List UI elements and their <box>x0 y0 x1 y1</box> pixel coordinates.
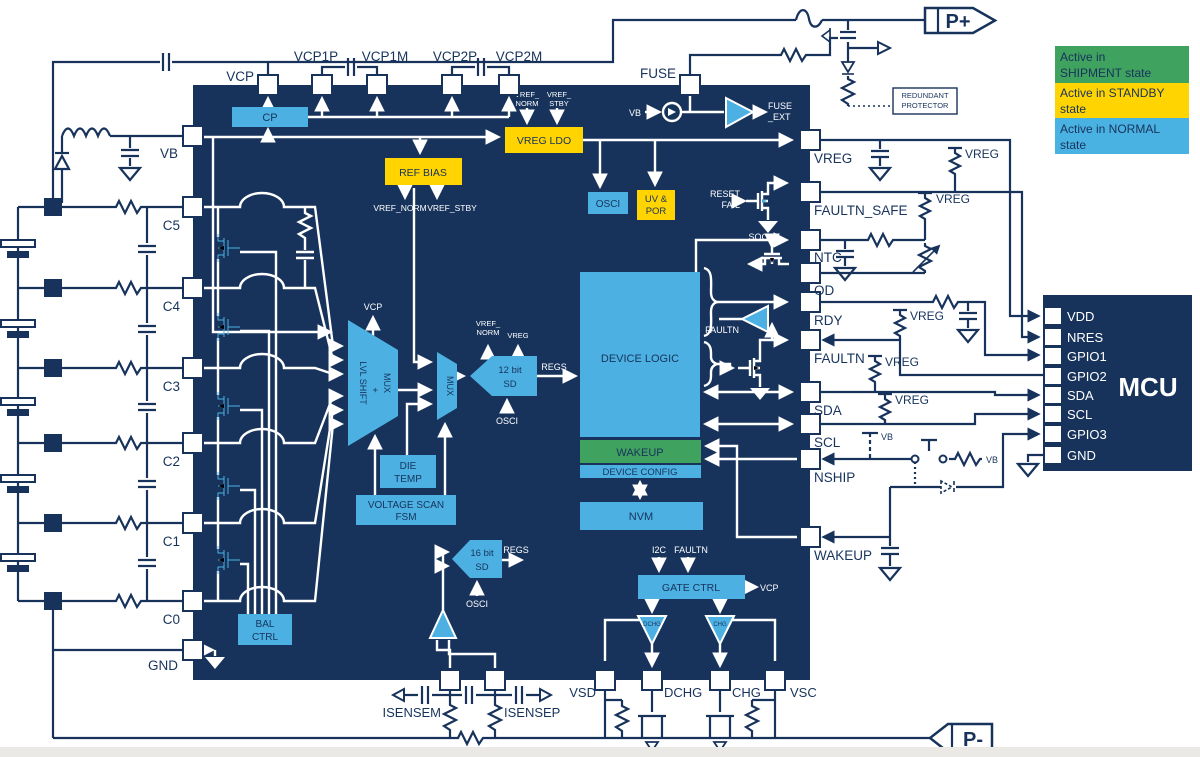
sd12-osci: OSCI <box>496 416 518 426</box>
pin-vcp: VCP <box>226 69 254 84</box>
pin-vreg: VREG <box>814 151 852 166</box>
faultn-driver-label: FAULTN <box>705 325 739 335</box>
pin-c2: C2 <box>163 454 180 469</box>
gate-vcp-label: VCP <box>760 583 779 593</box>
legend-standby-line1: Active in STANDBY <box>1060 86 1164 100</box>
pin-vcp1p: VCP1P <box>294 49 338 64</box>
vb-pullup-label: VB <box>881 432 893 442</box>
soc-label: SOC <box>748 232 768 242</box>
pin-c5: C5 <box>163 218 180 233</box>
battery-stack-network <box>1 129 183 739</box>
lvl-shift-plus: + <box>370 387 380 392</box>
pin-ntc: NTC <box>814 250 842 265</box>
chg-driver-label: CHG <box>713 622 727 628</box>
vref-stby-tiny-1: VREF_ <box>547 90 572 99</box>
vref-stby-out: VREF_STBY <box>427 203 477 213</box>
chg-fet <box>706 690 734 753</box>
pin-gnd: GND <box>148 658 178 673</box>
mcu-pin-gnd: GND <box>1067 448 1096 463</box>
pin-scl: SCL <box>814 435 841 450</box>
mcu-title: MCU <box>1118 372 1177 402</box>
device-logic-label: DEVICE LOGIC <box>601 353 679 365</box>
bottom-network: ISENSEM ISENSEP VSD DCHG CHG VSC <box>53 685 930 753</box>
vcp-flying-caps <box>322 58 509 76</box>
diagram-canvas: REDUNDANT PROTECTOR P+ Active in SHIPMEN… <box>0 0 1200 757</box>
nvm-label: NVM <box>629 511 653 523</box>
bal-ctrl-label-2: CTRL <box>252 632 279 643</box>
mcu-pin-gpio1: GPIO1 <box>1067 349 1107 364</box>
nship-switch-network: VB VB <box>824 432 1038 493</box>
isensem-label: ISENSEM <box>382 705 441 720</box>
mcu: VDD NRES GPIO1 GPIO2 SDA SCL GPIO3 GND M… <box>1043 295 1192 471</box>
pin-wakeup: WAKEUP <box>814 548 872 563</box>
vreg-pullup-label-5: VREG <box>895 393 929 407</box>
vb-fuse-src: VB <box>629 108 641 118</box>
pin-c3: C3 <box>163 379 180 394</box>
voltage-scan-label-1: VOLTAGE SCAN <box>368 500 444 511</box>
pin-vcp2m: VCP2M <box>496 49 543 64</box>
pin-od: OD <box>814 283 835 298</box>
sd12-regs: REGS <box>541 362 567 372</box>
vref-norm-out: VREF_NORM <box>373 203 426 213</box>
p-plus-terminal: P+ <box>925 8 995 33</box>
sd16-osci: OSCI <box>466 599 488 609</box>
osci-label: OSCI <box>596 199 620 210</box>
p-plus-label: P+ <box>945 11 970 33</box>
lvl-shift-mux-label: MUX <box>382 373 392 393</box>
gate-diode <box>842 62 854 74</box>
reset-fail-1: RESET <box>710 189 741 199</box>
legend-normal-line2: state <box>1060 138 1086 152</box>
legend-shipment-line1: Active in <box>1060 50 1105 64</box>
mcu-pin-gpio3: GPIO3 <box>1067 427 1107 442</box>
lvl-shift-label: LVL SHIFT <box>358 361 368 405</box>
pin-c1: C1 <box>163 534 180 549</box>
fuse-ext-2: _EXT <box>767 112 791 122</box>
cp-label: CP <box>262 112 277 124</box>
sd12-vref-1: VREF_ <box>476 319 501 328</box>
dchg-label: DCHG <box>664 685 702 700</box>
bal-ctrl-label-1: BAL <box>256 619 275 630</box>
bottom-strip <box>0 747 1200 757</box>
sd16-regs: REGS <box>503 545 529 555</box>
dchg-fet <box>638 690 666 753</box>
mux-label: MUX <box>445 376 455 396</box>
pin-vcp2p: VCP2P <box>433 49 477 64</box>
legend-shipment-line2: SHIPMENT state <box>1060 66 1151 80</box>
mcu-pin-sda: SDA <box>1067 388 1094 403</box>
sd12-vreg: VREG <box>507 331 528 340</box>
legend: Active in SHIPMENT state Active in STAND… <box>1055 46 1189 154</box>
inductor <box>62 129 110 137</box>
wakeup-block-label: WAKEUP <box>616 447 663 459</box>
dchg-driver-label: DCHG <box>643 622 661 628</box>
pin-c4: C4 <box>163 299 181 314</box>
pin-vb: VB <box>160 146 178 161</box>
gate-faultn-label: FAULTN <box>674 545 708 555</box>
reset-fail-2: FAIL <box>721 200 740 210</box>
sd12-vref-2: NORM <box>477 328 500 337</box>
vb-resistor-label: VB <box>986 455 998 465</box>
pin-fuse: FUSE <box>640 66 676 81</box>
chg-label: CHG <box>732 685 761 700</box>
scl-network: VREG <box>820 393 1038 424</box>
redundant-protector-label-2: PROTECTOR <box>902 101 950 110</box>
pin-rdy: RDY <box>814 313 843 328</box>
vref-stby-tiny-2: STBY <box>549 99 569 108</box>
uv-por-label-1: UV & <box>645 194 668 205</box>
vreg-pullup-label-2: VREG <box>936 192 970 206</box>
rdy-network <box>820 296 1038 355</box>
legend-standby-line2: state <box>1060 102 1086 116</box>
die-temp-label-1: DIE <box>400 461 417 472</box>
uv-por-label-2: POR <box>646 206 667 217</box>
vcp-mux-label: VCP <box>364 302 383 312</box>
vreg-pullup-label-3: VREG <box>910 309 944 323</box>
protector-output-arrow <box>878 42 890 54</box>
device-config-label: DEVICE CONFIG <box>603 467 678 478</box>
isensep-label: ISENSEP <box>504 705 560 720</box>
push-button <box>921 440 937 451</box>
vsd-label: VSD <box>569 685 596 700</box>
vb-filter <box>55 129 183 204</box>
optional-diode <box>941 481 954 493</box>
pin-sda: SDA <box>814 403 842 418</box>
i2c-label: I2C <box>652 545 667 555</box>
diode <box>55 153 69 169</box>
body-diode <box>822 28 830 44</box>
sd16-label-1: 16 bit <box>470 548 494 559</box>
legend-normal-line1: Active in NORMAL <box>1060 122 1160 136</box>
vreg-pullup-label-1: VREG <box>965 147 999 161</box>
vsd-network <box>605 690 628 738</box>
vsc-label: VSC <box>790 685 817 700</box>
mcu-pin-gpio2: GPIO2 <box>1067 369 1107 384</box>
sd16-label-2: SD <box>475 562 488 573</box>
pin-faultn: FAULTN <box>814 351 865 366</box>
mcu-pin-nres: NRES <box>1067 330 1103 345</box>
gate-ctrl-label: GATE CTRL <box>662 582 720 594</box>
vreg-ldo-label: VREG LDO <box>517 135 571 147</box>
redundant-protector-label-1: REDUNDANT <box>901 91 949 100</box>
voltage-scan-label-2: FSM <box>395 512 416 523</box>
chip: CP VREG LDO REF BIAS OSCI UV & POR LVL S… <box>148 49 908 690</box>
mcu-pin-scl: SCL <box>1067 407 1092 422</box>
sd12-label-1: 12 bit <box>498 365 522 376</box>
fuse-ext-1: FUSE <box>768 101 792 111</box>
pin-nship: NSHIP <box>814 470 855 485</box>
vreg-pullup-label-4: VREG <box>885 355 919 369</box>
sd12-label-2: SD <box>503 379 516 390</box>
ref-bias-label: REF BIAS <box>399 167 447 179</box>
wakeup-network <box>824 487 900 580</box>
block-diagram: REDUNDANT PROTECTOR P+ Active in SHIPMEN… <box>0 0 1200 757</box>
die-temp-label-2: TEMP <box>394 474 422 485</box>
pin-faultn-safe: FAULTN_SAFE <box>814 203 908 218</box>
thermistor-arrow <box>913 246 939 272</box>
pin-c0: C0 <box>163 612 180 627</box>
mcu-pin-vdd: VDD <box>1067 309 1094 324</box>
vref-norm-tiny-2: NORM <box>516 99 539 108</box>
pin-vcp1m: VCP1M <box>362 49 409 64</box>
